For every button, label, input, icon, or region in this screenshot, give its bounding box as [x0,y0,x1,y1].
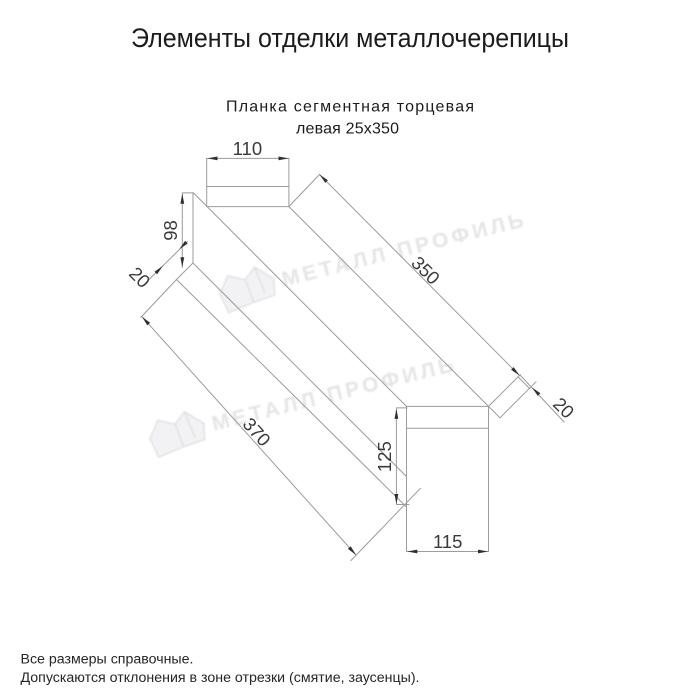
svg-text:125: 125 [374,441,395,472]
svg-text:Элементы отделки металлочерепи: Элементы отделки металлочерепицы [131,23,569,53]
svg-text:Планка сегментная торцевая: Планка сегментная торцевая [226,99,474,116]
svg-text:левая 25х350: левая 25х350 [296,121,399,138]
svg-text:Допускаются отклонения в зоне: Допускаются отклонения в зоне отрезки (с… [21,670,420,686]
svg-text:98: 98 [160,220,181,241]
svg-text:115: 115 [433,531,463,552]
svg-text:Все размеры справочные.: Все размеры справочные. [21,652,194,668]
svg-text:110: 110 [233,138,263,159]
